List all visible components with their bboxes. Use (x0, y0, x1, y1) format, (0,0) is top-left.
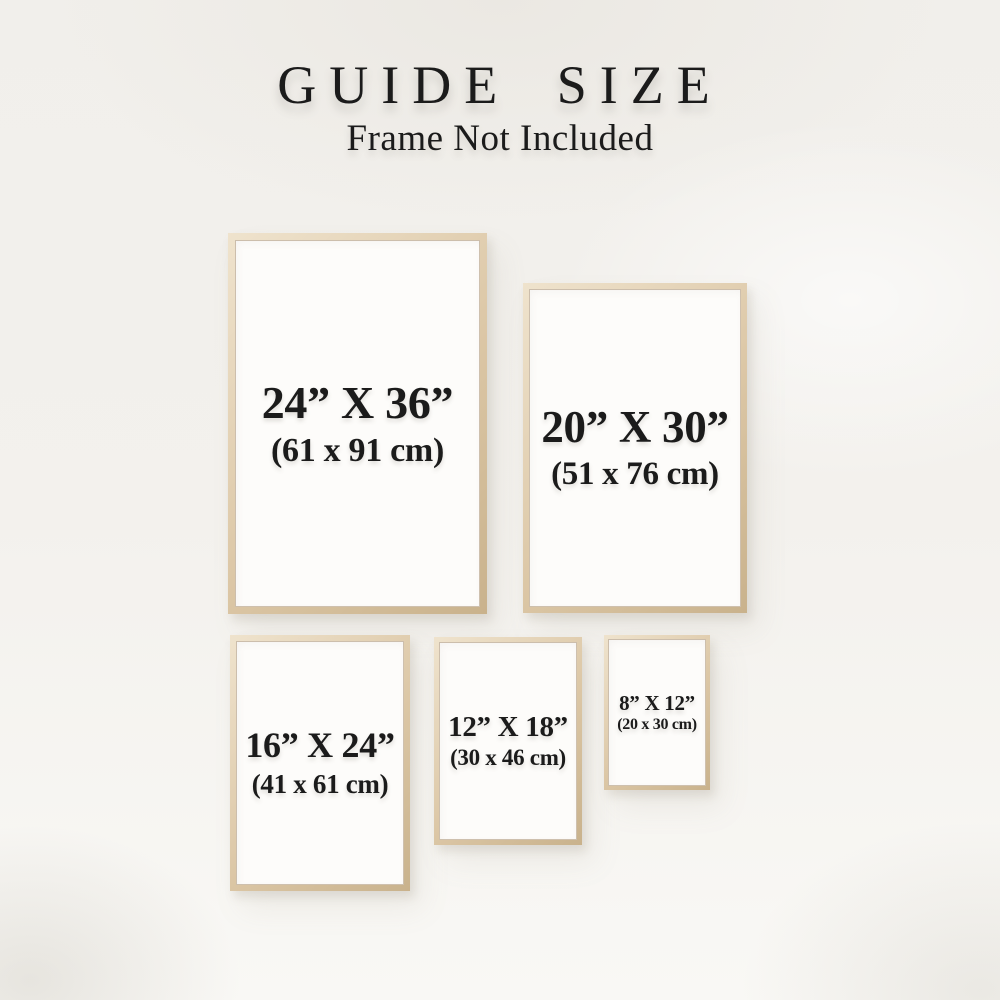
frame-8x12: 8” X 12” (20 x 30 cm) (604, 635, 710, 790)
size-label-inches: 24” X 36” (262, 379, 454, 427)
page-title: GUIDE SIZE (0, 56, 1000, 115)
size-label-inches: 16” X 24” (245, 727, 394, 765)
frame-20x30-mat: 20” X 30” (51 x 76 cm) (529, 289, 741, 607)
size-label-cm: (51 x 76 cm) (551, 457, 719, 492)
size-label-inches: 20” X 30” (541, 404, 728, 451)
size-guide-image: GUIDE SIZE Frame Not Included 24” X 36” … (0, 0, 1000, 1000)
size-label-inches: 8” X 12” (619, 692, 695, 714)
frame-12x18-mat: 12” X 18” (30 x 46 cm) (439, 642, 577, 840)
size-label-inches: 12” X 18” (448, 712, 568, 742)
frame-24x36-mat: 24” X 36” (61 x 91 cm) (235, 240, 480, 607)
size-label-cm: (41 x 61 cm) (252, 770, 389, 798)
frame-20x30: 20” X 30” (51 x 76 cm) (523, 283, 747, 613)
size-label-cm: (61 x 91 cm) (271, 433, 444, 469)
header: GUIDE SIZE Frame Not Included (0, 56, 1000, 160)
frame-24x36: 24” X 36” (61 x 91 cm) (228, 233, 487, 614)
frame-16x24: 16” X 24” (41 x 61 cm) (230, 635, 410, 891)
page-subtitle: Frame Not Included (0, 119, 1000, 160)
frame-8x12-mat: 8” X 12” (20 x 30 cm) (608, 639, 706, 786)
frame-12x18: 12” X 18” (30 x 46 cm) (434, 637, 582, 845)
size-label-cm: (30 x 46 cm) (450, 746, 566, 770)
size-label-cm: (20 x 30 cm) (617, 717, 697, 734)
frame-16x24-mat: 16” X 24” (41 x 61 cm) (236, 641, 404, 885)
